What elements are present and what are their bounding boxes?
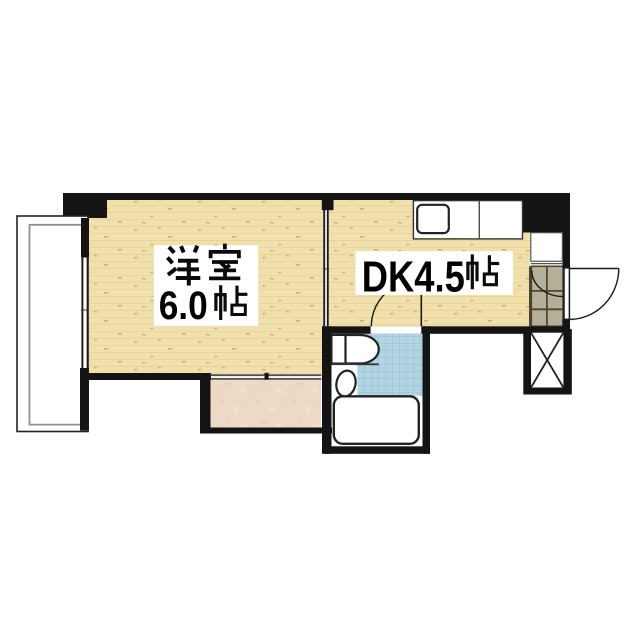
svg-text:DK4.5: DK4.5 [362, 253, 465, 302]
svg-text:6.0: 6.0 [159, 284, 208, 328]
